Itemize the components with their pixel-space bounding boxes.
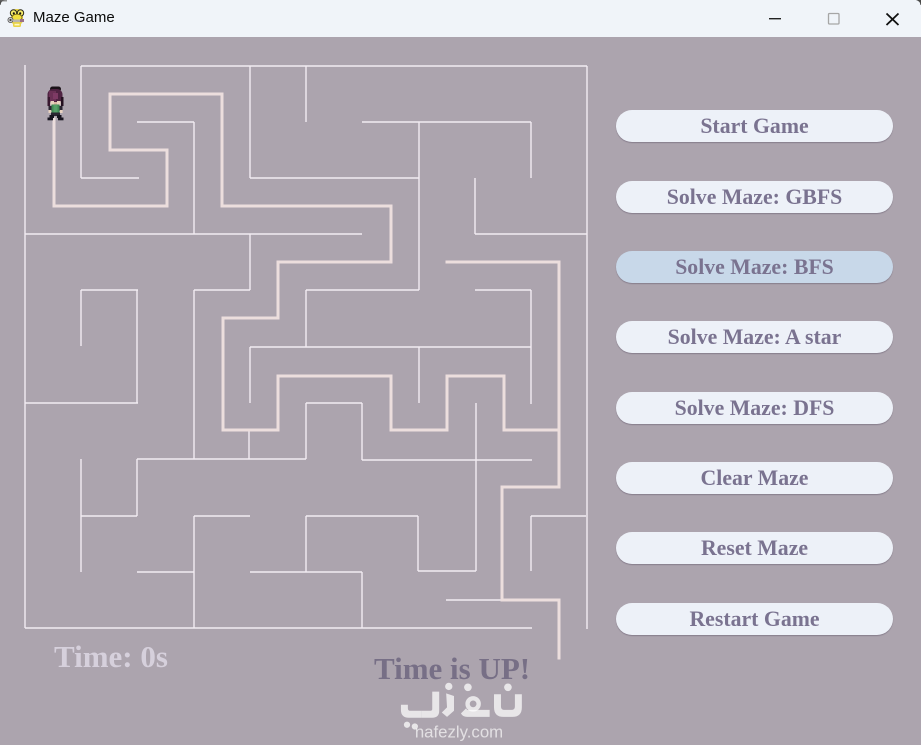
svg-text:nafezly.com: nafezly.com [415, 723, 503, 742]
